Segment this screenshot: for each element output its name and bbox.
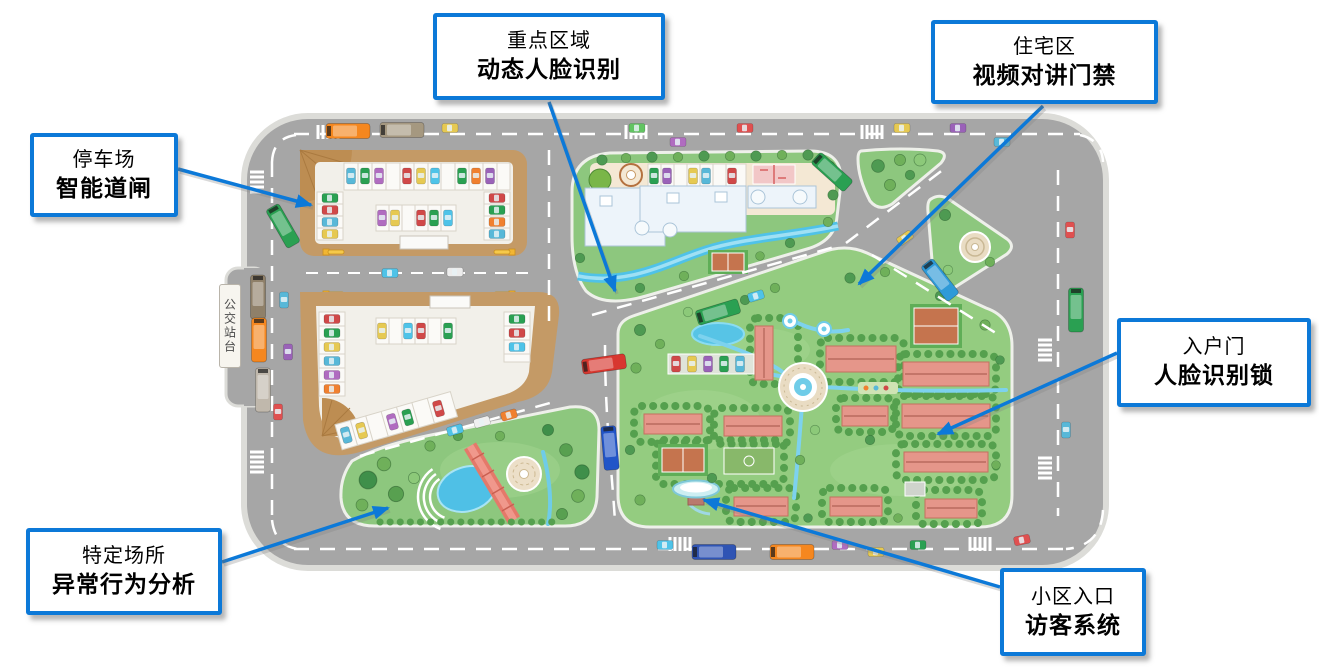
- callout-entrance: 小区入口 访客系统: [1000, 568, 1146, 656]
- smart-community-slide: 公交站台 重点区域 动态人脸识别 住宅区 视频对讲门禁 停车场 智能道闸 入户门…: [0, 0, 1319, 668]
- callout-parking: 停车场 智能道闸: [30, 133, 178, 217]
- callout-entry-door-title: 入户门: [1183, 336, 1246, 359]
- bus-icon: [252, 318, 267, 362]
- bus-stop-sign: 公交站台: [219, 284, 241, 368]
- bus-icon: [256, 368, 271, 412]
- bus-icon: [692, 545, 736, 560]
- bus-icon: [380, 123, 424, 138]
- callout-parking-feature: 智能道闸: [56, 175, 152, 201]
- callout-residential-title: 住宅区: [1013, 36, 1076, 59]
- callout-entrance-title: 小区入口: [1031, 586, 1115, 609]
- callout-special-place-title: 特定场所: [82, 545, 166, 568]
- callout-entrance-feature: 访客系统: [1025, 612, 1121, 638]
- bus-icon: [251, 275, 266, 319]
- callout-key-area-feature: 动态人脸识别: [477, 56, 621, 82]
- callout-special-place-feature: 异常行为分析: [52, 571, 196, 597]
- callout-key-area-title: 重点区域: [507, 30, 591, 53]
- bus-icon: [770, 545, 814, 560]
- callout-residential: 住宅区 视频对讲门禁: [931, 20, 1158, 104]
- callout-entry-door-feature: 人脸识别锁: [1154, 362, 1274, 388]
- callout-key-area: 重点区域 动态人脸识别: [433, 13, 665, 100]
- callout-entry-door: 入户门 人脸识别锁: [1117, 318, 1311, 407]
- bus-icon: [326, 124, 370, 139]
- callout-parking-title: 停车场: [73, 149, 136, 172]
- callout-special-place: 特定场所 异常行为分析: [26, 528, 222, 615]
- bus-icon: [1069, 288, 1084, 332]
- callout-residential-feature: 视频对讲门禁: [973, 62, 1117, 88]
